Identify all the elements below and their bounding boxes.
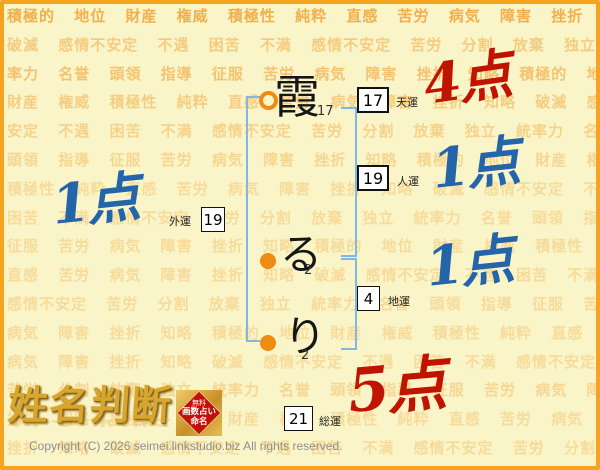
badge-line-1: 無料	[192, 399, 206, 407]
name-char-2: る	[280, 234, 322, 276]
gaiun-label: 外運	[169, 213, 191, 229]
soun-value-box: 21	[284, 406, 313, 431]
name-char-1: 霞	[274, 74, 320, 120]
chiun-bracket	[341, 258, 357, 350]
free-naming-badge: 無料 画数占い 命名	[176, 390, 222, 436]
background-word-row: 破滅 感情不安定 不遇 困苦 不満 感情不安定 苦労 分割 放棄 独立 統	[7, 31, 600, 60]
jinun-score: 1点	[429, 133, 520, 196]
jinun-label: 人運	[397, 173, 419, 189]
jinun-value-box: 19	[357, 165, 389, 191]
badge-text: 無料 画数占い 命名	[176, 390, 222, 436]
background-word-row: 積極的 地位 財産 権威 積極性 純粋 直感 苦労 病気 障害 挫折 知略	[7, 2, 600, 31]
seimei-handan-page: 積極的 地位 財産 権威 積極性 純粋 直感 苦労 病気 障害 挫折 知略破滅 …	[0, 0, 600, 470]
tenun-label: 天運	[396, 94, 418, 110]
site-logo-reflection: 姓名判断	[8, 418, 172, 427]
gaiun-value-box: 19	[201, 207, 225, 232]
jinun-bracket	[341, 107, 357, 257]
name-char-3-strokes: 2	[301, 348, 309, 363]
chiun-label: 地運	[388, 293, 410, 309]
given2-dot-marker	[260, 335, 276, 351]
soun-label: 総運	[319, 413, 341, 429]
chiun-score: 1点	[423, 231, 514, 294]
gaiun-bracket	[246, 96, 260, 342]
name-char-2-strokes: 2	[304, 263, 312, 278]
badge-line-3: 命名	[190, 417, 207, 427]
soun-score: 5点	[345, 354, 446, 422]
gaiun-score: 1点	[49, 169, 140, 232]
given1-dot-marker	[260, 253, 276, 269]
tenun-value-box: 17	[357, 87, 389, 113]
chiun-value-box: 4	[357, 286, 380, 311]
badge-line-2: 画数占い	[182, 407, 216, 417]
name-char-1-strokes: 17	[317, 104, 334, 119]
tenun-score: 4点	[420, 46, 512, 111]
copyright-text: Copyright (C) 2026 seimei.linkstudio.biz…	[29, 439, 342, 453]
